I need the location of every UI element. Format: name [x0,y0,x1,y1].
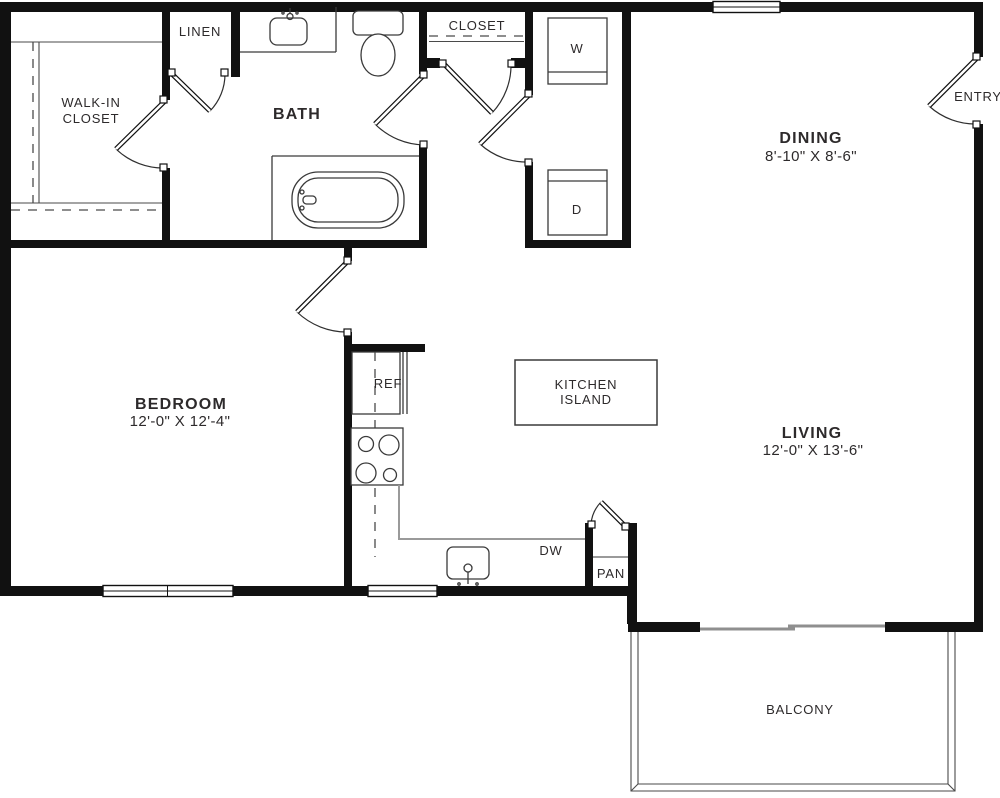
bedroom-dimensions: 12'-0" X 12'-4" [130,413,231,430]
floor-plan: WALK-IN CLOSET LINEN BATH CLOSET W D DIN… [0,0,1000,798]
living-label: LIVING [782,425,843,442]
hall-closet-door [439,60,515,113]
bath-label: BATH [273,106,321,123]
walk-in-closet-door [116,96,167,171]
walls [0,2,983,632]
windows [103,2,780,597]
bathtub [272,156,419,240]
bathroom-vanity-sink [240,7,336,52]
walk-in-closet-label-line2: CLOSET [63,111,120,126]
kitchen-island-label-line2: ISLAND [560,392,612,407]
stove [351,428,403,485]
labels: WALK-IN CLOSET LINEN BATH CLOSET W D DIN… [61,18,1000,717]
balcony-sliding-door [700,626,885,629]
toilet [353,11,403,76]
linen-door [168,69,228,111]
balcony-label: BALCONY [766,702,834,717]
linen-label: LINEN [179,24,221,39]
refrigerator-label: REF [374,376,402,391]
kitchen-island-label-line1: KITCHEN [555,377,618,392]
kitchen-sink [447,547,489,585]
dining-dimensions: 8'-10" X 8'-6" [765,148,857,165]
laundry-door [480,90,532,166]
dining-window [713,2,780,13]
pantry-label: PAN [597,566,625,581]
dishwasher-label: DW [539,543,562,558]
dining-label: DINING [779,130,842,147]
pantry-door [588,502,629,530]
bedroom-window [103,586,233,597]
kitchen-window [368,586,437,597]
bedroom-label: BEDROOM [135,396,227,413]
hall-closet-label: CLOSET [449,18,506,33]
counter-edge [399,485,585,539]
dryer-label: D [572,202,582,217]
living-dimensions: 12'-0" X 13'-6" [763,442,864,459]
walk-in-closet-label-line1: WALK-IN [61,95,120,110]
bedroom-door [297,257,351,336]
entry-label: ENTRY [954,89,1000,104]
washer-label: W [570,41,583,56]
bath-fixtures [240,7,419,240]
bath-door [375,71,427,148]
